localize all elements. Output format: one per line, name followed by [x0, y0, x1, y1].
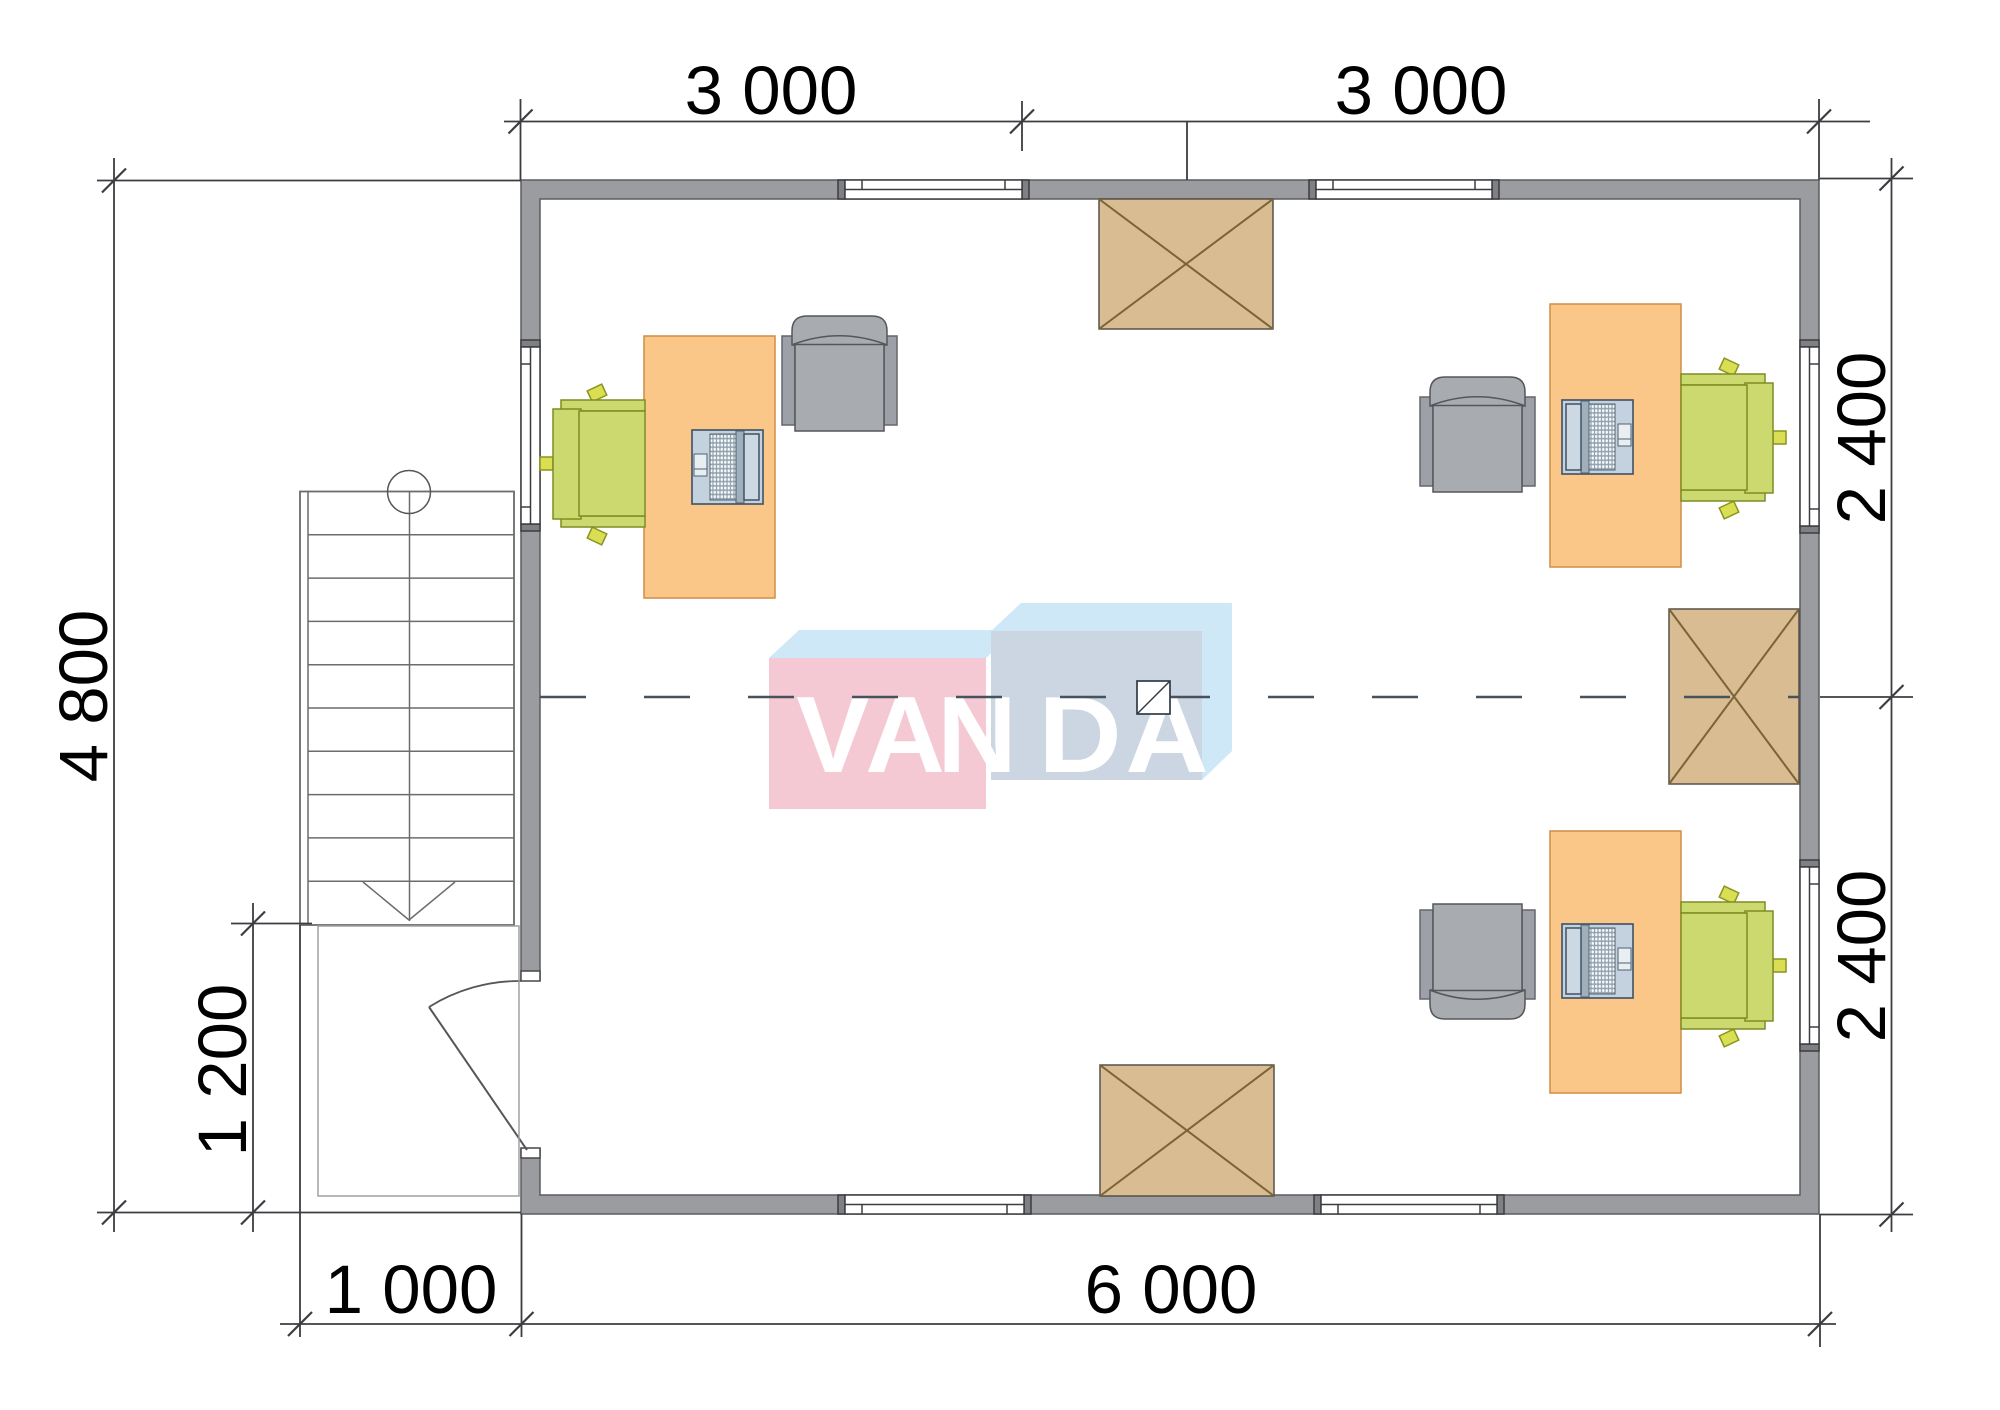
- svg-text:D: D: [1038, 674, 1121, 795]
- svg-text:1 200: 1 200: [184, 984, 261, 1157]
- svg-text:A: A: [865, 675, 945, 796]
- svg-text:V: V: [796, 675, 870, 796]
- svg-text:4 800: 4 800: [45, 610, 122, 783]
- svg-text:N: N: [937, 675, 1017, 796]
- svg-text:2 400: 2 400: [1823, 870, 1900, 1043]
- svg-text:2 400: 2 400: [1823, 352, 1900, 525]
- svg-text:3 000: 3 000: [1335, 52, 1508, 129]
- svg-text:6 000: 6 000: [1085, 1251, 1258, 1328]
- svg-text:3 000: 3 000: [685, 52, 858, 129]
- svg-text:1 000: 1 000: [325, 1251, 498, 1328]
